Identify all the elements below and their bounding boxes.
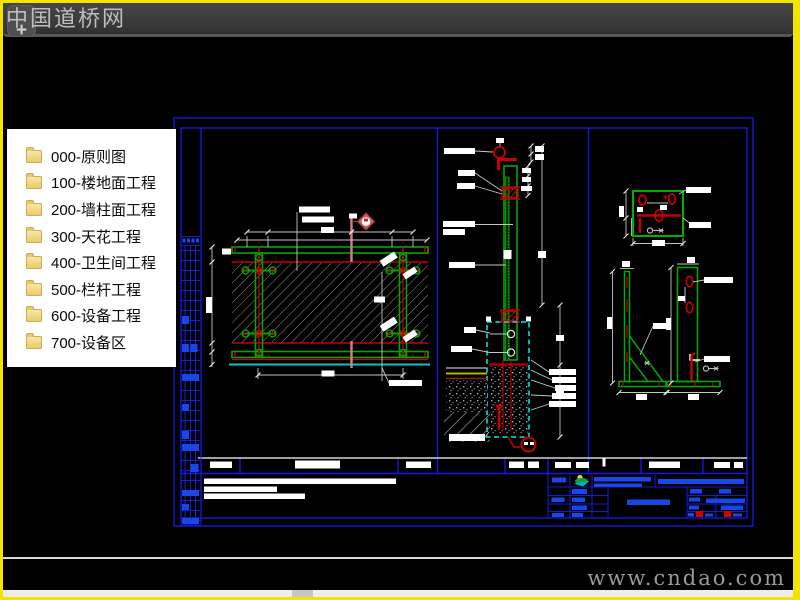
notes-text-blocks — [204, 479, 396, 500]
view-railing-section — [443, 138, 576, 452]
folder-label: 500-栏杆工程 — [51, 279, 141, 300]
folder-icon — [26, 283, 42, 296]
frame-border-left — [0, 0, 3, 600]
folder-label: 700-设备区 — [51, 332, 126, 353]
folder-icon — [26, 336, 42, 349]
folder-label: 300-天花工程 — [51, 226, 141, 247]
folder-label: 200-墙柱面工程 — [51, 199, 156, 220]
detail-bracket-left — [607, 261, 670, 400]
detail-callout-circle — [508, 437, 536, 452]
handrail-section-circle — [494, 147, 505, 158]
concrete-fill — [489, 366, 528, 435]
folder-item-100[interactable]: 100-楼地面工程 — [7, 170, 176, 197]
binding-strip — [181, 237, 201, 526]
anchor-bolts — [490, 330, 515, 356]
handrail-bracket — [497, 158, 517, 170]
folder-panel: 000-原则图 100-楼地面工程 200-墙柱面工程 300-天花工程 400… — [7, 129, 176, 367]
folder-icon — [26, 176, 42, 189]
site-url-watermark: www.cndao.com — [587, 566, 786, 590]
detail-bracket-right — [665, 257, 734, 400]
horizontal-scrollbar[interactable] — [3, 590, 793, 597]
section-marker-diamond — [349, 213, 375, 230]
screen: + 中国道桥网 000-原则图 100-楼地面工程 200-墙柱面工程 300-… — [0, 0, 800, 600]
clamp-section — [500, 310, 520, 322]
folder-icon — [26, 230, 42, 243]
title-block — [548, 474, 747, 519]
folder-item-600[interactable]: 600-设备工程 — [7, 303, 176, 330]
folder-item-200[interactable]: 200-墙柱面工程 — [7, 196, 176, 223]
folder-item-300[interactable]: 300-天花工程 — [7, 223, 176, 250]
folder-item-400[interactable]: 400-卫生间工程 — [7, 249, 176, 276]
folder-item-000[interactable]: 000-原则图 — [7, 143, 176, 170]
clamp-section — [500, 187, 520, 199]
folder-icon — [26, 150, 42, 163]
folder-icon — [26, 203, 42, 216]
folder-icon — [26, 309, 42, 322]
folder-icon — [26, 256, 42, 269]
folder-label: 600-设备工程 — [51, 305, 141, 326]
frame-border-top — [0, 0, 800, 3]
folder-item-500[interactable]: 500-栏杆工程 — [7, 276, 176, 303]
detail-plan-post-fixing — [619, 187, 711, 246]
separator-line — [3, 557, 793, 559]
frame-border-right — [793, 0, 800, 600]
bolt-symbol — [647, 228, 663, 233]
folder-item-700[interactable]: 700-设备区 — [7, 329, 176, 356]
company-logo-icon — [574, 475, 590, 487]
stamp-red-2 — [724, 511, 731, 517]
folder-label: 000-原则图 — [51, 146, 126, 167]
view-title-blocks — [210, 459, 743, 469]
folder-label: 400-卫生间工程 — [51, 252, 156, 273]
folder-label: 100-楼地面工程 — [51, 172, 156, 193]
site-watermark-text: 中国道桥网 — [6, 1, 126, 33]
bolt-symbol — [703, 366, 718, 371]
floor-layers — [444, 368, 490, 442]
stamp-red-1 — [696, 511, 703, 517]
view-railing-elevation — [206, 207, 430, 387]
view-bracket-details — [607, 187, 733, 400]
scrollbar-thumb[interactable] — [292, 590, 313, 597]
